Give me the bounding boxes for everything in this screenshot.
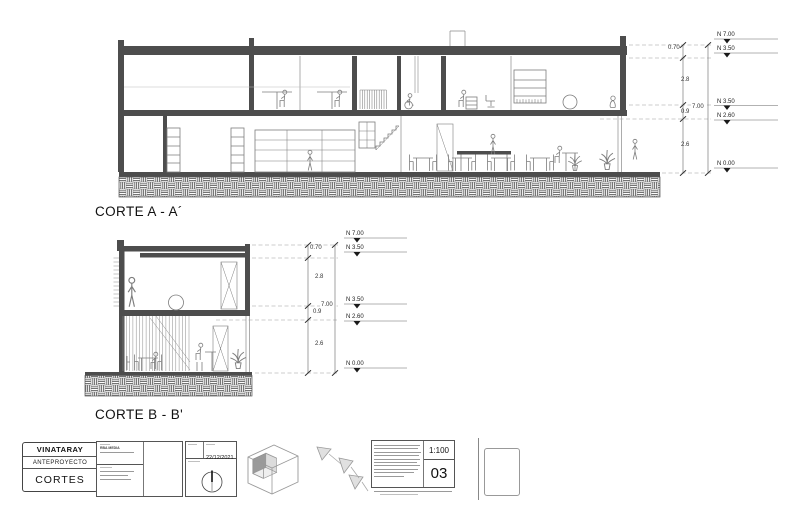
project-phase: ANTEPROYECTO xyxy=(33,460,87,466)
north-arrow-icon xyxy=(197,466,227,496)
section-b-dim-beam: 0.9 xyxy=(313,309,321,315)
section-b-level-0: N 7.00 xyxy=(346,231,364,237)
section-a-level-0: N 7.00 xyxy=(717,32,735,38)
section-a-level-4: N 0.00 xyxy=(717,161,735,167)
section-path-diagram xyxy=(315,444,371,496)
sheet-title: CORTES xyxy=(35,474,85,486)
sheet-number: 03 xyxy=(431,465,448,482)
section-a-level-1: N 3.50 xyxy=(717,46,735,52)
notes-text-block xyxy=(372,441,424,487)
section-a-dim-lower: 2.6 xyxy=(681,142,689,148)
section-b-title: CORTE B - B' xyxy=(95,407,183,422)
section-a-level-2: N 3.50 xyxy=(717,99,735,105)
section-b-dim-upper: 2.8 xyxy=(315,274,323,280)
section-b-dim-lower: 2.6 xyxy=(315,341,323,347)
project-name: VINATARAY xyxy=(37,445,83,454)
section-b-level-2: N 3.50 xyxy=(346,297,364,303)
fine-print-line-2 xyxy=(380,494,418,495)
iso-cube-diagram xyxy=(238,438,310,500)
section-b-dimensions xyxy=(216,238,407,376)
section-a-drawing xyxy=(118,31,778,197)
section-b-dim-parapet: 0.70 xyxy=(310,245,322,251)
section-a-level-3: N 2.60 xyxy=(717,113,735,119)
fine-print-line xyxy=(374,491,452,492)
section-a-dimensions xyxy=(600,39,778,176)
section-b-structure xyxy=(85,240,252,376)
project-id-box: VINATARAY ANTEPROYECTO CORTES xyxy=(22,442,98,492)
section-b-level-4: N 0.00 xyxy=(346,361,364,367)
title-block-divider xyxy=(478,438,479,500)
section-b-dim-total: 7.00 xyxy=(320,302,334,308)
section-b-furniture xyxy=(127,262,246,371)
notes-scale-box: 1:100 03 xyxy=(371,440,455,488)
foundation-hatch-a xyxy=(119,177,660,197)
section-a-title: CORTE A - A´ xyxy=(95,204,183,219)
section-a-structure xyxy=(118,36,660,177)
date-north-box: 22/12/2021 xyxy=(185,441,237,497)
section-b-level-1: N 3.50 xyxy=(346,245,364,251)
section-a-dim-total: 7.00 xyxy=(691,104,705,110)
section-a-dim-parapet: 0.70 xyxy=(668,45,680,51)
section-a-dim-upper: 2.8 xyxy=(681,77,689,83)
foundation-hatch-b xyxy=(85,376,252,397)
section-b-level-3: N 2.60 xyxy=(346,314,364,320)
drawing-sheet: CORTE A - A´ 0.70 2.8 7.00 0.9 2.6 N 7.0… xyxy=(0,0,800,518)
author-field: RBA MEDIA xyxy=(100,446,143,451)
section-a-dim-beam: 0.9 xyxy=(681,109,689,115)
info-box: RBA MEDIA xyxy=(96,441,183,497)
empty-stamp-box xyxy=(484,448,520,496)
scale-value: 1:100 xyxy=(429,446,449,455)
